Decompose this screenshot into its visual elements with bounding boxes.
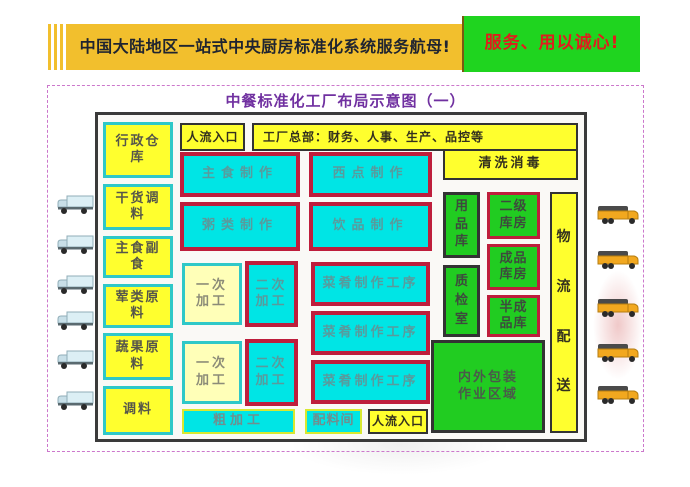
room-packaging-area: 内外包装作业区域 bbox=[431, 340, 545, 433]
room-logistics-delivery: 物流配送 bbox=[550, 192, 578, 433]
room-porridge-production: 粥类制作 bbox=[180, 202, 300, 251]
incoming-truck-icon bbox=[55, 232, 95, 260]
outgoing-truck-icon bbox=[596, 248, 640, 276]
room-dry-goods: 干货调料 bbox=[103, 184, 173, 230]
room-primary-processing-1: 一次加工 bbox=[182, 263, 242, 325]
slide-page: { "header": { "main_title": "中国大陆地区一站式中央… bbox=[0, 0, 690, 487]
room-staple-production: 主食制作 bbox=[180, 152, 300, 197]
room-secondary-processing-2: 二次加工 bbox=[245, 339, 298, 406]
room-cleaning-disinfection: 清洗消毒 bbox=[443, 149, 578, 180]
entrance-bottom-label: 人流入口 bbox=[368, 409, 428, 434]
room-meat-material: 荤类原料 bbox=[103, 284, 173, 328]
room-pastry-production: 西点制作 bbox=[309, 152, 432, 197]
entrance-top-label: 人流入口 bbox=[180, 123, 245, 151]
room-supplies-storage: 用品库 bbox=[443, 192, 480, 258]
room-quality-inspection: 质检室 bbox=[443, 265, 480, 337]
room-ingredients: 配料间 bbox=[305, 409, 362, 434]
room-vegetable-material: 蔬果原料 bbox=[103, 333, 173, 380]
factory-layout-diagram: 行政仓库 干货调料 主食副食 荤类原料 蔬果原料 调料 人流入口 工厂总部：财务… bbox=[95, 112, 587, 442]
incoming-truck-icon bbox=[55, 192, 95, 220]
room-dish-process-2: 菜肴制作工序 bbox=[311, 311, 430, 355]
factory-hq-label: 工厂总部：财务、人事、生产、品控等 bbox=[252, 123, 578, 151]
page-banner-title: 中国大陆地区一站式中央厨房标准化系统服务航母! bbox=[68, 24, 462, 70]
room-beverage-production: 饮品制作 bbox=[309, 202, 432, 251]
room-admin-warehouse: 行政仓库 bbox=[103, 122, 173, 178]
incoming-truck-icon bbox=[55, 347, 95, 375]
room-dish-process-1: 菜肴制作工序 bbox=[311, 262, 430, 306]
outgoing-truck-icon bbox=[596, 296, 640, 324]
room-semi-finished-storage: 半成品库 bbox=[487, 295, 540, 337]
outgoing-truck-icon bbox=[596, 341, 640, 369]
room-staple-food: 主食副食 bbox=[103, 236, 173, 278]
room-secondary-processing-1: 二次加工 bbox=[245, 261, 298, 327]
room-primary-processing-2: 一次加工 bbox=[182, 341, 242, 404]
room-finished-storage: 成品库房 bbox=[487, 244, 540, 290]
slogan-badge: 服务、用以诚心! bbox=[462, 16, 640, 72]
room-rough-processing: 粗加工 bbox=[182, 409, 295, 434]
diagram-title: 中餐标准化工厂布局示意图（一） bbox=[47, 90, 644, 111]
room-dish-process-3: 菜肴制作工序 bbox=[311, 360, 430, 404]
room-seasoning: 调料 bbox=[103, 386, 173, 435]
incoming-truck-icon bbox=[55, 388, 95, 416]
incoming-truck-icon bbox=[55, 272, 95, 300]
header-stripes-decoration bbox=[48, 24, 68, 70]
outgoing-truck-icon bbox=[596, 383, 640, 411]
outgoing-truck-icon bbox=[596, 203, 640, 231]
room-secondary-storage: 二级库房 bbox=[487, 192, 540, 239]
incoming-truck-icon bbox=[55, 308, 95, 336]
